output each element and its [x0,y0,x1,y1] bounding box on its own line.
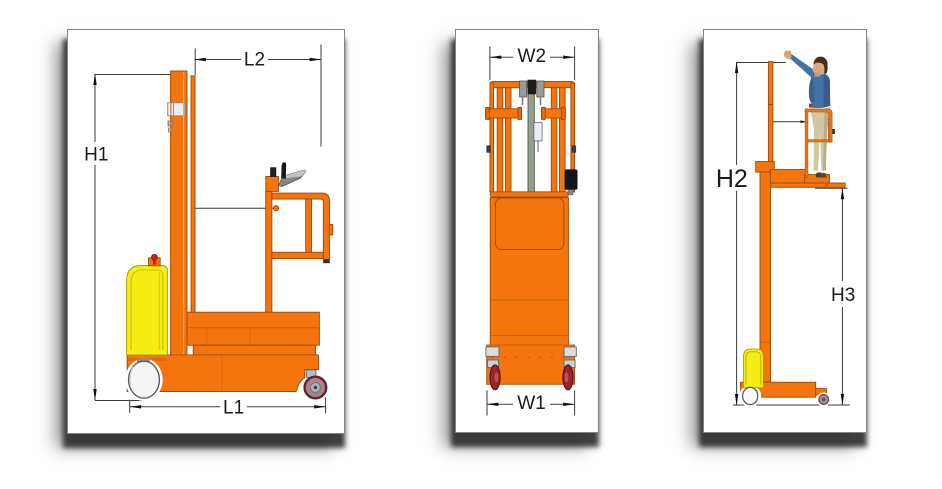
svg-text:H2: H2 [716,165,748,193]
svg-text:W2: W2 [518,46,547,67]
svg-text:H3: H3 [831,285,855,306]
svg-text:L1: L1 [223,398,244,419]
svg-text:W1: W1 [517,393,546,414]
svg-text:L2: L2 [244,50,265,71]
svg-text:H1: H1 [84,144,108,165]
